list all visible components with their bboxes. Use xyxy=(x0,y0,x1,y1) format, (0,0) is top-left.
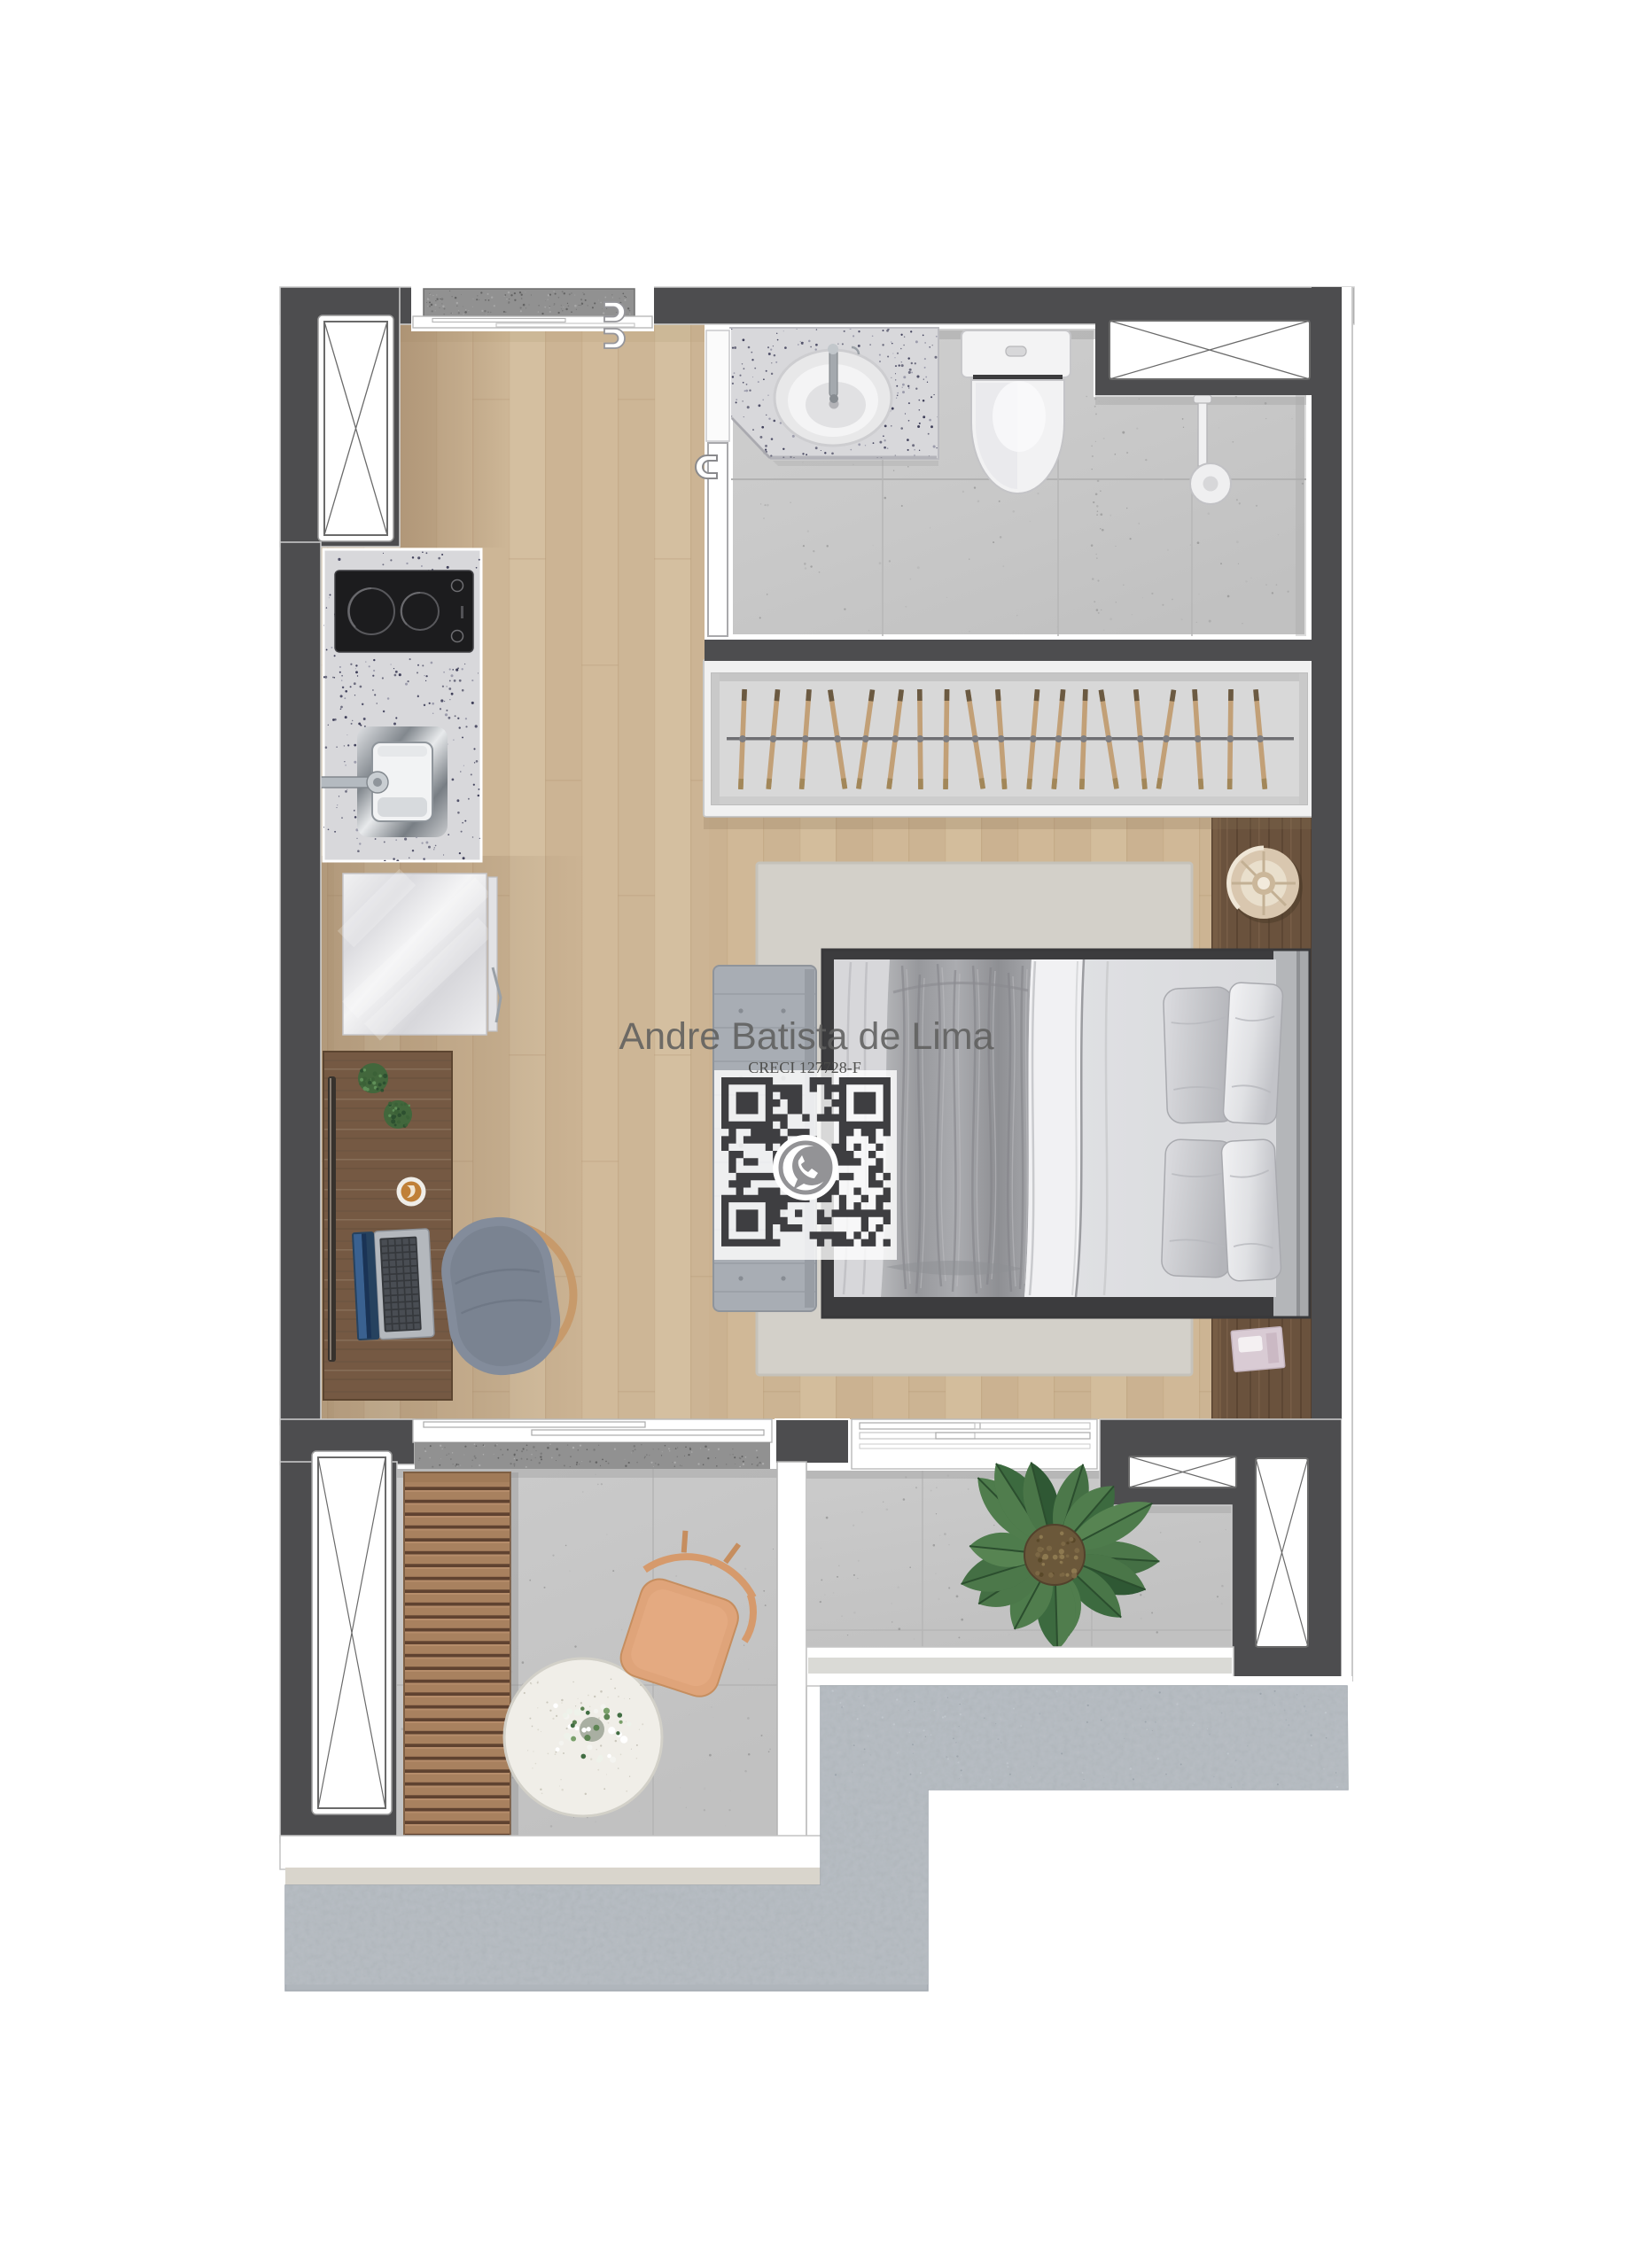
svg-text:CRECI 127728-F: CRECI 127728-F xyxy=(748,1059,861,1076)
svg-text:Andre Batista de Lima: Andre Batista de Lima xyxy=(619,1015,993,1058)
